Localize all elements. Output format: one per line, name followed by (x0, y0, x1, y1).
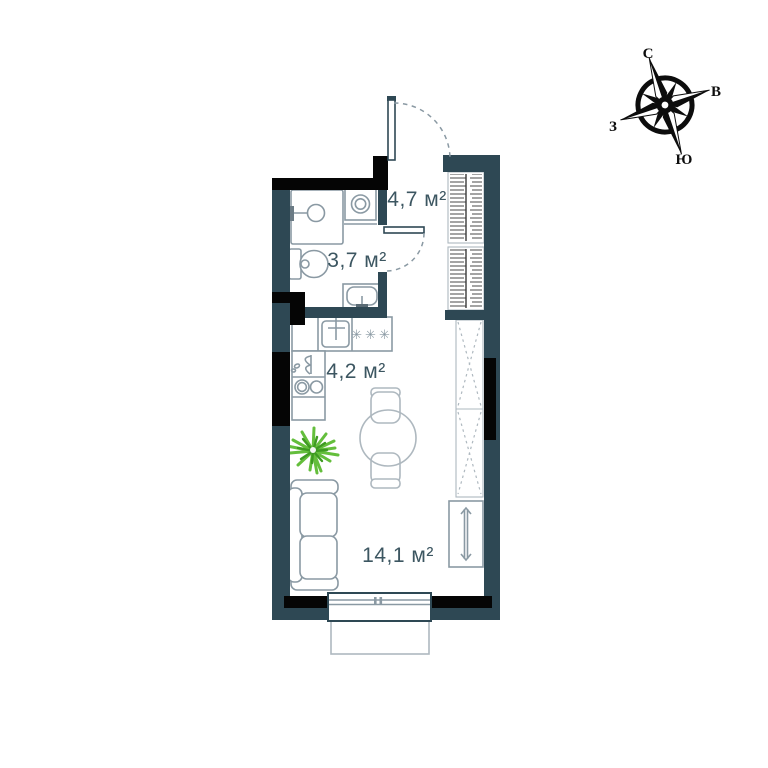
wall-bathroom-north (272, 178, 388, 190)
wall-bathroom-south (300, 307, 387, 318)
wall-segment-black (272, 352, 290, 426)
sofa-cushion (300, 536, 337, 579)
wall-segment-black (484, 358, 496, 440)
compass-rose: С В З Ю (605, 43, 727, 170)
entry-door-swing (394, 103, 450, 159)
wall-segment-black (284, 596, 330, 608)
compass-south-label: Ю (676, 152, 693, 168)
compass-north-label: С (643, 46, 654, 62)
plant-center (310, 447, 316, 453)
balcony (331, 620, 429, 654)
compass-east-label: В (711, 84, 721, 100)
floorplan-svg: ✳✳✳ (0, 0, 768, 768)
entry-door (387, 96, 450, 160)
wall-segment-black (290, 292, 305, 325)
chair-back (371, 479, 400, 488)
window-mullion (380, 597, 383, 605)
toilet (289, 249, 328, 279)
hallway-wardrobe (448, 172, 484, 310)
room-label-hallway: 4,7 м² (387, 188, 446, 211)
bathroom-door (384, 227, 424, 271)
room-label-kitchen: 4,2 м² (326, 360, 385, 383)
room-label-living: 14,1 м² (362, 544, 434, 567)
floor-plan-page: ✳✳✳ (0, 0, 768, 768)
bathroom-door-swing (386, 233, 424, 271)
room-label-bathroom: 3,7 м² (327, 249, 386, 272)
entry-door-leaf (388, 100, 395, 160)
shower (288, 190, 343, 244)
dining-set (360, 388, 416, 488)
bathroom-door-leaf (384, 227, 424, 233)
plant (287, 428, 338, 473)
wall-top (443, 155, 500, 172)
wall-closet-stub (445, 310, 484, 320)
window-mullion (374, 597, 377, 605)
wall-bathroom-east (378, 190, 387, 225)
sofa-cushion (300, 493, 337, 537)
hob-burners: ✳✳✳ (351, 327, 393, 342)
chair (371, 392, 400, 423)
wardrobe-cabinet (449, 501, 483, 567)
wall-segment-black (430, 596, 492, 608)
toilet-bowl (300, 251, 328, 278)
sofa (288, 480, 338, 590)
shower-head (308, 205, 325, 222)
built-in-closet (456, 320, 483, 497)
window (328, 593, 431, 621)
washing-machine (344, 189, 377, 224)
wall-entry-stub (373, 156, 388, 190)
compass-west-label: З (609, 119, 617, 135)
